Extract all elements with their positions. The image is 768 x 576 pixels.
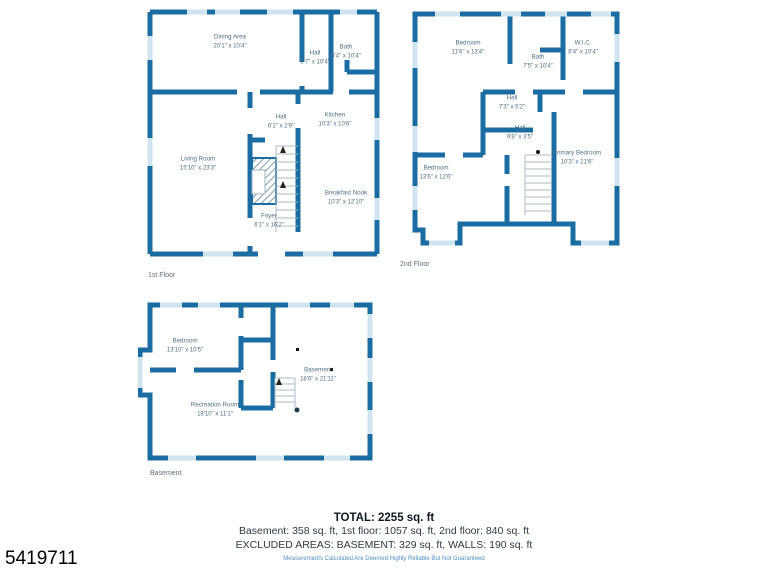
room-label-bath-first: Bath 6'4" x 10'4" — [331, 43, 361, 62]
basement-drawing — [138, 302, 378, 470]
room-dims: 13'6" x 12'6" — [420, 173, 453, 182]
room-dims: 20'1" x 10'4" — [214, 42, 247, 51]
room-label-basement-bedroom: Bedroom 13'10" x 10'5" — [167, 337, 203, 356]
room-dims: 13'10" x 10'5" — [167, 346, 203, 355]
room-label-bath-second: Bath 7'5" x 10'4" — [523, 53, 553, 72]
floorplan-page: Dining Area 20'1" x 10'4" Hall 5'7" x 10… — [0, 0, 768, 576]
room-label-kitchen: Kitchen 10'3" x 10'6" — [319, 111, 352, 130]
summary-disclaimer: Measurements Calculated Are Deemed Highl… — [0, 556, 768, 562]
room-name: Hall — [300, 49, 330, 59]
caption-basement: Basement — [150, 470, 182, 477]
room-name: Bedroom — [167, 337, 203, 347]
stair-post-dot — [536, 150, 540, 154]
second-floor-plan: Bedroom 11'6" x 13'4" Bath 7'5" x 10'4" … — [405, 8, 635, 268]
room-name: Dining Area — [214, 33, 247, 43]
room-label-dining-area: Dining Area 20'1" x 10'4" — [214, 33, 247, 52]
room-name: Kitchen — [319, 111, 352, 121]
fireplace-hatch — [252, 158, 276, 204]
room-dims: 10'3" x 12'10" — [325, 198, 367, 207]
room-dims: 5'7" x 10'4" — [300, 58, 330, 67]
caption-second-floor: 2nd Floor — [400, 261, 430, 268]
summary-total: TOTAL: 2255 sq. ft — [0, 511, 768, 525]
room-label-bedroom-lower: Bedroom 13'6" x 12'6" — [420, 164, 453, 183]
basement-stairs — [275, 378, 300, 413]
room-label-breakfast-nook: Breakfast Nook 10'3" x 12'10" — [325, 189, 367, 208]
room-label-foyer: Foyer 6'1" x 16'2" — [254, 212, 284, 231]
room-label-hall-top: Hall 5'7" x 10'4" — [300, 49, 330, 68]
room-name: Bath — [523, 53, 553, 63]
room-label-bedroom-top: Bedroom 11'6" x 13'4" — [452, 39, 484, 58]
room-name: W.I.C. — [568, 39, 598, 49]
room-dims: 18'10" x 11'1" — [191, 410, 239, 419]
summary-floors: Basement: 358 sq. ft, 1st floor: 1057 sq… — [0, 525, 768, 539]
room-dims: 18'6" x 21'11" — [300, 375, 336, 384]
area-summary: TOTAL: 2255 sq. ft Basement: 358 sq. ft,… — [0, 511, 768, 562]
basement-plan: Bedroom 13'10" x 10'5" Basement 18'6" x … — [138, 302, 378, 470]
stair-newel-dot — [295, 408, 300, 413]
room-dims: 6'4" x 10'4" — [331, 52, 361, 61]
room-dims: 6'4" x 10'4" — [568, 48, 598, 57]
second-floor-stairs — [525, 150, 552, 215]
room-name: Foyer — [254, 212, 284, 222]
caption-first-floor: 1st Floor — [148, 272, 175, 279]
room-dims: 9'8" x 3'5" — [507, 133, 533, 142]
room-dims: 10'3" x 10'6" — [319, 120, 352, 129]
stair-arrow-icon — [276, 378, 282, 385]
room-name: Hall — [499, 94, 525, 104]
room-label-hall-center: Hall 6'1" x 2'9" — [268, 113, 294, 132]
room-dims: 11'6" x 13'4" — [452, 48, 484, 57]
room-dims: 10'3" x 21'6" — [553, 158, 601, 167]
room-dims: 7'3" x 5'2" — [499, 103, 525, 112]
post-dot — [296, 348, 299, 351]
room-dims: 7'5" x 10'4" — [523, 62, 553, 71]
room-name: Bath — [331, 43, 361, 53]
summary-excluded: EXCLUDED AREAS: BASEMENT: 329 sq. ft, WA… — [0, 539, 768, 553]
room-name: Breakfast Nook — [325, 189, 367, 199]
room-label-recreation-room: Recreation Room 18'10" x 11'1" — [191, 401, 239, 420]
room-name: Bedroom — [420, 164, 453, 174]
stair-arrow-icon — [280, 181, 286, 188]
room-dims: 15'10" x 23'3" — [180, 164, 216, 173]
room-label-wic: W.I.C. 6'4" x 10'4" — [568, 39, 598, 58]
room-name: Primary Bedroom — [553, 149, 601, 159]
room-label-living-room: Living Room 15'10" x 23'3" — [180, 155, 216, 174]
room-dims: 6'1" x 2'9" — [268, 122, 294, 131]
stair-arrow-icon — [280, 146, 286, 153]
room-name: Basement — [300, 366, 336, 376]
room-name: Hall — [507, 124, 533, 134]
room-label-basement-area: Basement 18'6" x 21'11" — [300, 366, 336, 385]
room-label-hall-upper: Hall 7'3" x 5'2" — [499, 94, 525, 113]
room-name: Hall — [268, 113, 294, 123]
mls-number: 5419711 — [5, 548, 78, 570]
first-floor-plan: Dining Area 20'1" x 10'4" Hall 5'7" x 10… — [145, 8, 395, 260]
room-name: Recreation Room — [191, 401, 239, 411]
room-name: Living Room — [180, 155, 216, 165]
room-name: Bedroom — [452, 39, 484, 49]
room-label-hall-lower: Hall 9'8" x 3'5" — [507, 124, 533, 143]
room-dims: 6'1" x 16'2" — [254, 221, 284, 230]
room-label-primary-bedroom: Primary Bedroom 10'3" x 21'6" — [553, 149, 601, 168]
